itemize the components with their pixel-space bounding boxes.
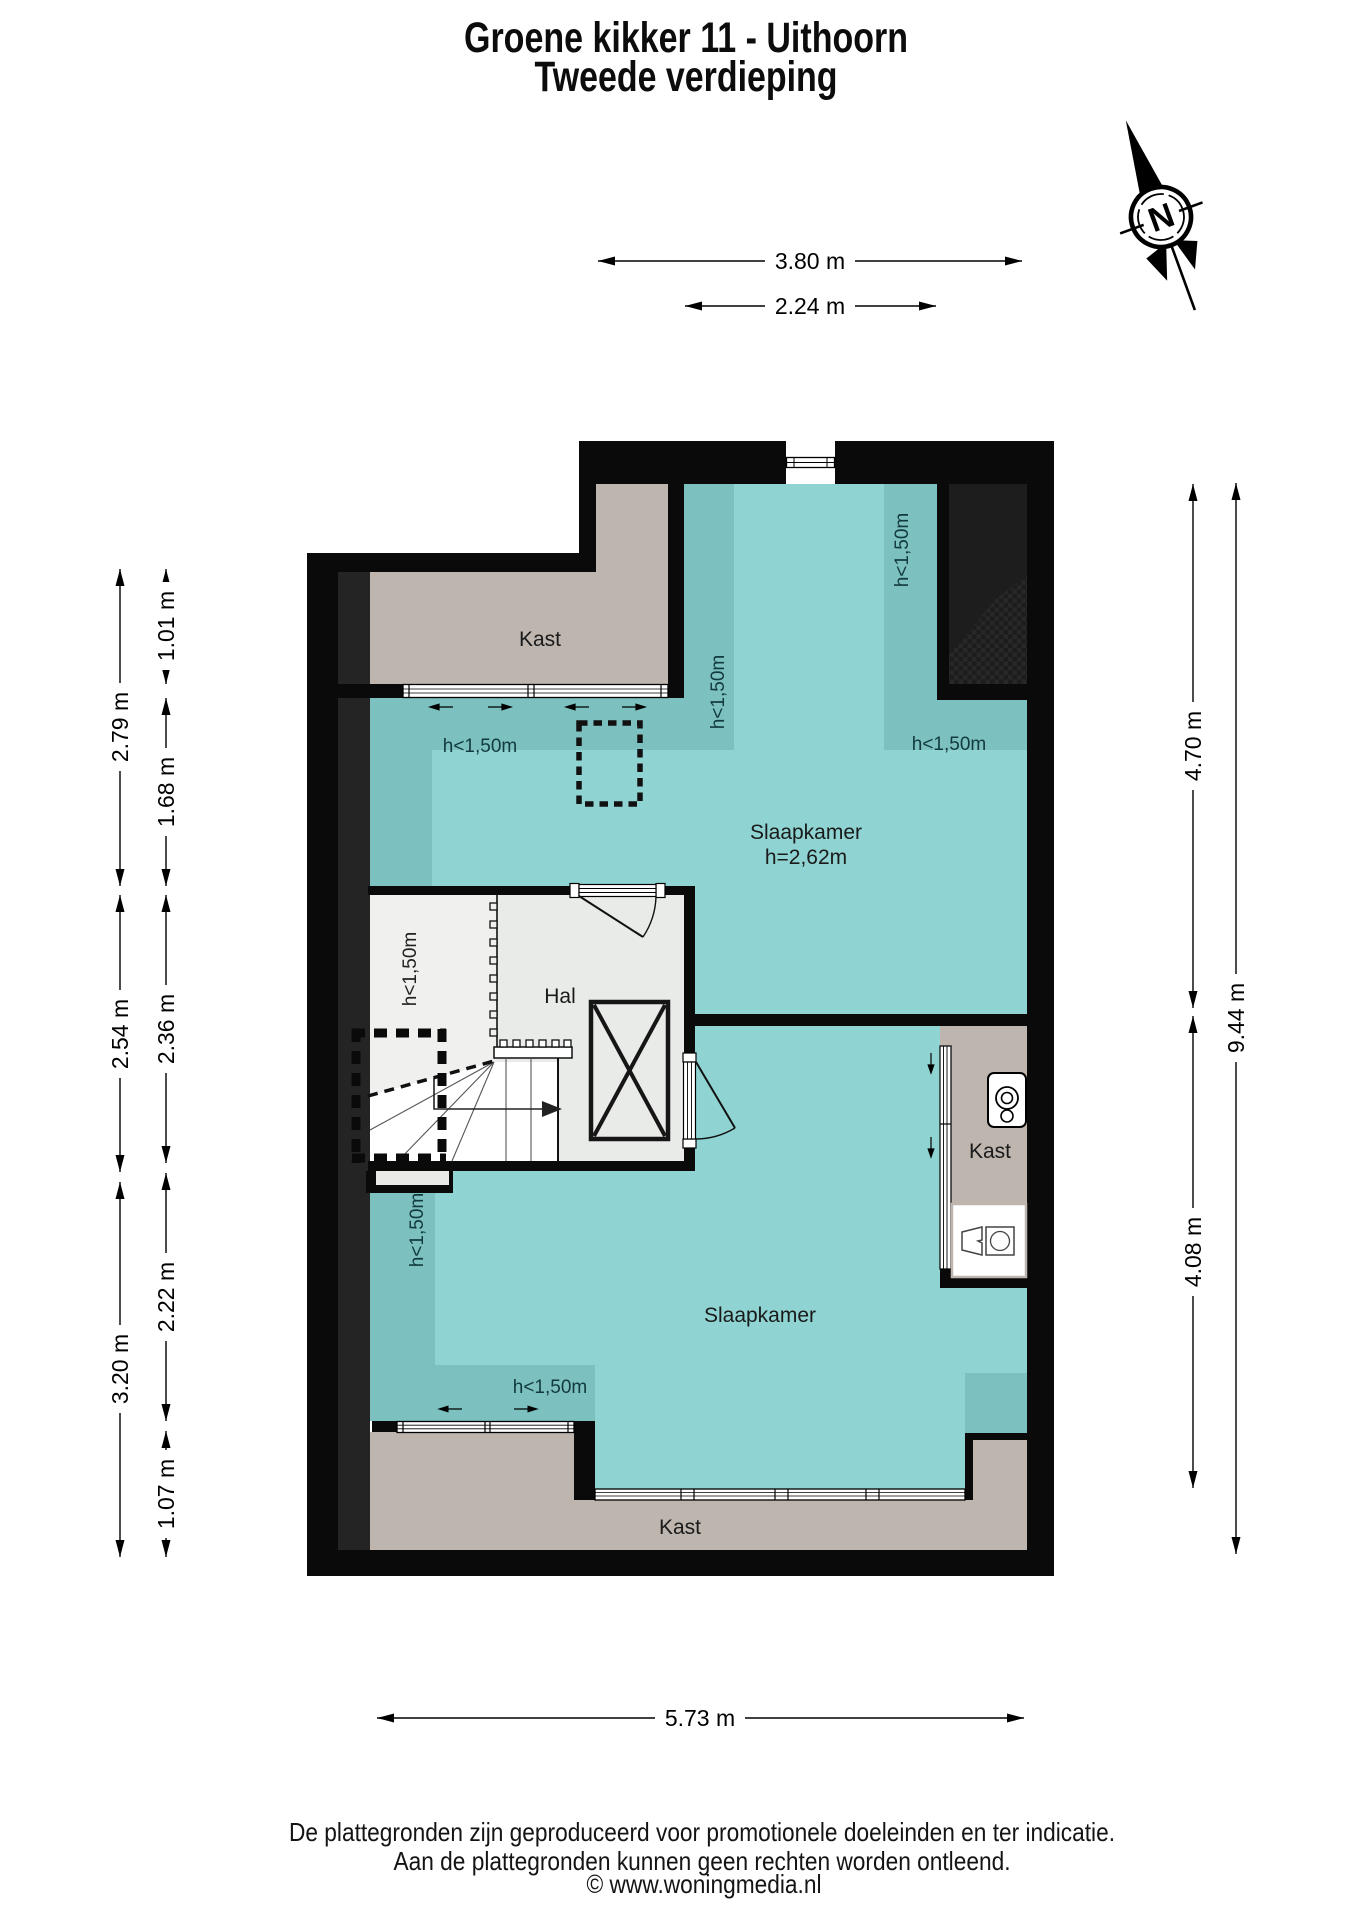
svg-text:Kast: Kast [659,1516,701,1539]
svg-text:h=2,62m: h=2,62m [765,846,847,869]
svg-text:4.70 m: 4.70 m [1180,711,1206,781]
svg-text:h<1,50m: h<1,50m [400,932,421,1006]
svg-text:1.68 m: 1.68 m [153,757,179,827]
svg-text:2.36 m: 2.36 m [153,994,179,1064]
svg-text:2.54 m: 2.54 m [107,999,133,1069]
svg-text:De plattegronden zijn geproduc: De plattegronden zijn geproduceerd voor … [289,1817,1115,1847]
svg-text:Kast: Kast [969,1140,1011,1163]
svg-text:5.73 m: 5.73 m [665,1705,735,1731]
svg-text:1.07 m: 1.07 m [153,1459,179,1529]
svg-text:Slaapkamer: Slaapkamer [704,1304,816,1327]
svg-text:h<1,50m: h<1,50m [912,734,986,755]
svg-text:h<1,50m: h<1,50m [443,736,517,757]
svg-text:Kast: Kast [519,628,561,651]
svg-text:© www.woningmedia.nl: © www.woningmedia.nl [587,1869,822,1899]
svg-text:2.79 m: 2.79 m [107,692,133,762]
svg-text:3.80 m: 3.80 m [775,248,845,274]
svg-text:h<1,50m: h<1,50m [513,1377,587,1398]
svg-text:Hal: Hal [544,985,576,1008]
svg-text:4.08 m: 4.08 m [1180,1217,1206,1287]
svg-text:h<1,50m: h<1,50m [708,655,729,729]
svg-text:9.44 m: 9.44 m [1223,983,1249,1053]
svg-text:1.01 m: 1.01 m [153,591,179,661]
svg-text:h<1,50m: h<1,50m [407,1193,428,1267]
svg-text:h<1,50m: h<1,50m [892,513,913,587]
svg-text:3.20 m: 3.20 m [107,1334,133,1404]
svg-text:2.22 m: 2.22 m [153,1262,179,1332]
svg-text:Tweede verdieping: Tweede verdieping [535,53,838,101]
svg-text:Slaapkamer: Slaapkamer [750,821,862,844]
svg-text:2.24 m: 2.24 m [775,293,845,319]
